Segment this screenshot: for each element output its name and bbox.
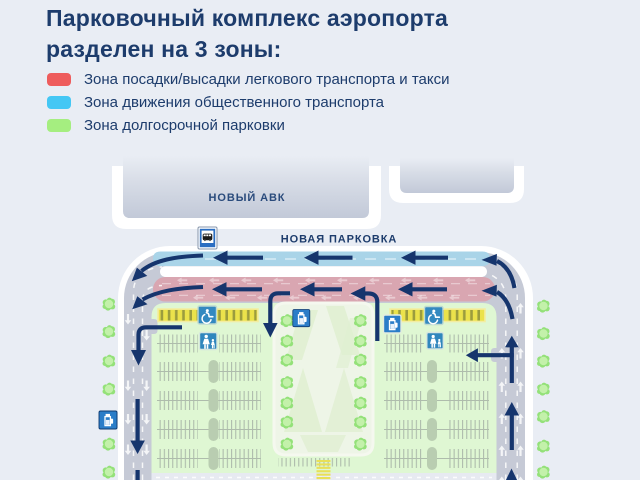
- svg-text:НОВЫЙ АВК: НОВЫЙ АВК: [209, 191, 286, 204]
- svg-text:НОВАЯ ПАРКОВКА: НОВАЯ ПАРКОВКА: [281, 234, 397, 246]
